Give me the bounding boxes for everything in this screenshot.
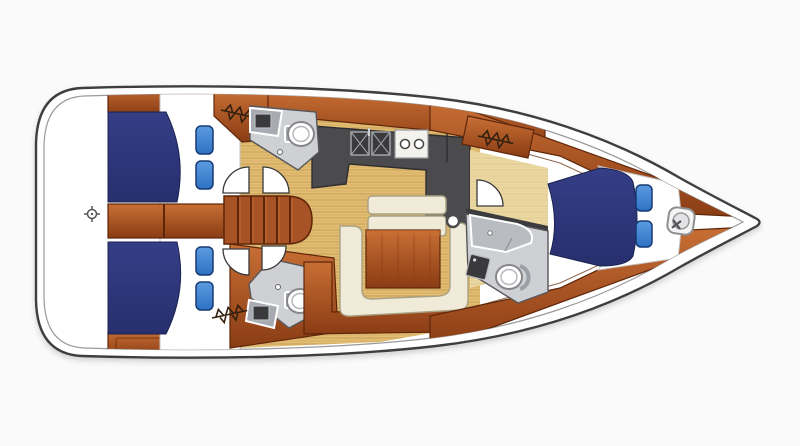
shower-drain: [278, 150, 283, 155]
aft-cabin-bottom-berth: [108, 242, 181, 334]
berth-cushion: [636, 185, 652, 211]
accommodation-plan: [108, 86, 770, 358]
berth-cushion: [196, 282, 213, 310]
companionway-steps: [224, 196, 312, 244]
yacht-floorplan-page: [0, 0, 800, 446]
berth-cushion: [636, 221, 652, 247]
toilet-icon: [285, 122, 314, 146]
head-sink: [253, 306, 269, 320]
vberth-mattress: [548, 168, 637, 266]
engine-box: [108, 204, 224, 238]
shower-drain: [488, 231, 492, 235]
windlass-icon: [666, 206, 695, 235]
berth-cushion: [196, 161, 213, 189]
mast-post-icon: [447, 215, 459, 227]
stove-burner-icon: [395, 130, 428, 158]
head-sink: [255, 114, 271, 128]
berth-cushion: [196, 247, 213, 275]
berth-cushion: [196, 126, 213, 154]
salon-table: [366, 230, 440, 288]
aft-cabin-top-berth: [108, 112, 180, 202]
salon-bench-backrest: [368, 196, 446, 214]
yacht-floorplan: [0, 0, 800, 446]
shower-drain: [276, 285, 281, 290]
